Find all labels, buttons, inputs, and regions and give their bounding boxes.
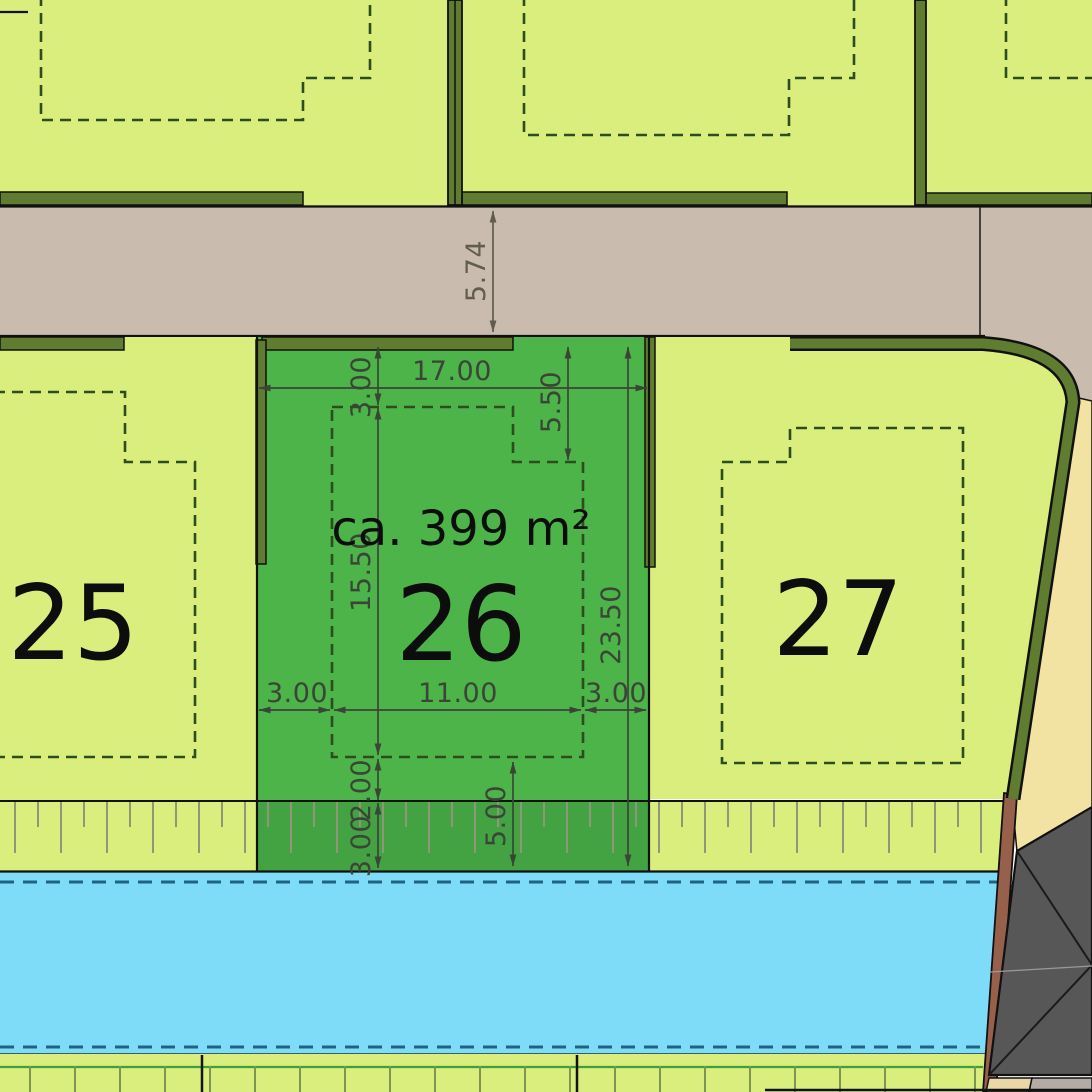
hedge-north-left-bottom bbox=[0, 192, 303, 205]
site-plan-canvas: 5.74 17.00 3.00 15.50 2.00 3.00 5.50 23.… bbox=[0, 0, 1092, 1092]
south-strip-hatching bbox=[0, 1066, 982, 1092]
hedge-plot25-front bbox=[0, 337, 124, 350]
boundary-north-middle-right bbox=[915, 0, 926, 205]
dim-label-plot-depth: 23.50 bbox=[596, 585, 627, 665]
hedge-plot26-front bbox=[262, 337, 513, 350]
plot-north-left bbox=[0, 0, 449, 207]
plot-27-number: 27 bbox=[772, 560, 903, 680]
dim-label-gap: 2.00 bbox=[346, 759, 377, 821]
hedge-north-right-bottom bbox=[925, 193, 1092, 205]
dim-label-rear: 5.00 bbox=[481, 785, 512, 847]
dim-label-front-setback: 3.00 bbox=[346, 356, 377, 418]
dim-label-slope: 3.00 bbox=[346, 815, 377, 877]
drainage-ditch bbox=[0, 871, 998, 1054]
dim-label-road-width: 5.74 bbox=[461, 240, 492, 302]
hedge-north-middle-bottom bbox=[462, 192, 787, 205]
dim-label-garage-notch: 5.50 bbox=[536, 371, 567, 433]
plot-north-right bbox=[925, 0, 1092, 207]
road-surface bbox=[0, 205, 1092, 337]
plot-26-area-label: ca. 399 m² bbox=[331, 501, 590, 557]
dim-label-side-right: 3.00 bbox=[585, 678, 647, 709]
dim-label-frontage: 17.00 bbox=[412, 356, 492, 387]
plot-north-middle bbox=[462, 0, 917, 207]
plot-25-number: 25 bbox=[7, 564, 138, 684]
site-plan-drawing: 5.74 17.00 3.00 15.50 2.00 3.00 5.50 23.… bbox=[0, 0, 1092, 1092]
plot-26-number: 26 bbox=[395, 565, 526, 685]
dim-label-side-left: 3.00 bbox=[266, 678, 328, 709]
